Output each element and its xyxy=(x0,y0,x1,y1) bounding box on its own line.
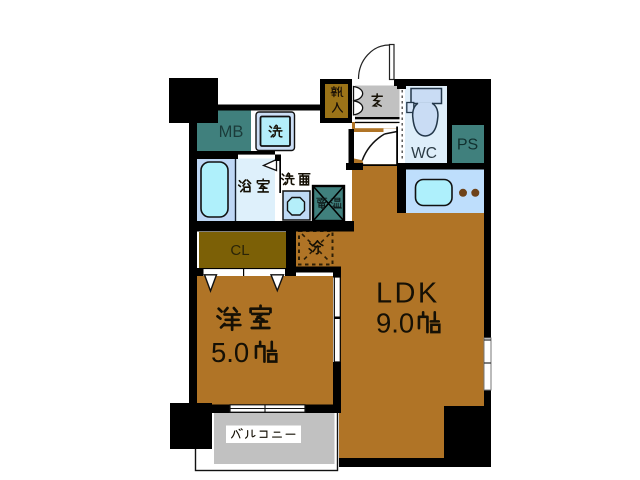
svg-text:PS: PS xyxy=(457,137,478,154)
svg-text:CL: CL xyxy=(230,242,249,259)
svg-text:MB: MB xyxy=(219,123,244,141)
svg-text:5.0: 5.0 xyxy=(211,337,249,368)
svg-text:LDK: LDK xyxy=(376,278,440,310)
svg-text:9.0: 9.0 xyxy=(376,308,414,339)
svg-text:WC: WC xyxy=(411,145,437,162)
